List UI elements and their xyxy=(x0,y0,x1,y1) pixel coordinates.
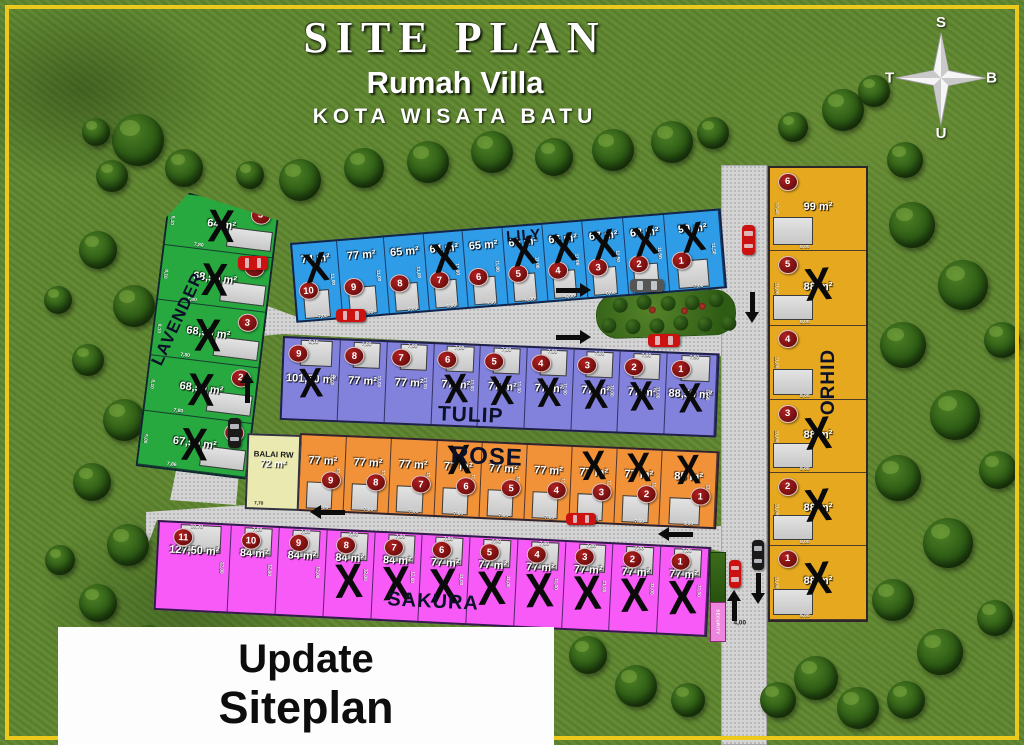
car-window xyxy=(355,311,360,320)
tree-icon xyxy=(73,463,111,501)
lot-tulip-7: 777 m²7,0011,00 xyxy=(385,342,435,424)
security-post-label: SECURITY xyxy=(716,609,721,634)
tree-icon xyxy=(471,131,513,173)
lot-tulip-2: 277 m²7,0011,00X xyxy=(618,352,668,434)
tree-icon xyxy=(837,687,879,729)
dimension-label: 11,00 xyxy=(494,260,500,272)
car-icon xyxy=(336,309,366,322)
dimension-label: 7,00 xyxy=(693,283,703,289)
compass-star-icon xyxy=(894,31,988,125)
car-window xyxy=(651,281,656,290)
lot-area-label: 127,50 m² xyxy=(158,543,230,558)
lot-area-label: 77 m² xyxy=(391,458,436,472)
tree-icon xyxy=(96,160,128,192)
sold-x-marker: X xyxy=(167,207,276,248)
lot-sakura-11: 11127,50 m²10,7012,00 xyxy=(156,522,233,611)
sold-x-marker: X xyxy=(769,262,868,307)
sold-x-marker: X xyxy=(665,381,715,416)
direction-arrow-icon xyxy=(556,330,591,344)
page-title: SITE PLAN xyxy=(230,12,680,63)
lot-tulip-1: 188,50 m²7,5011,00X xyxy=(664,353,717,435)
lot-number-badge: 7 xyxy=(410,475,431,494)
car-window xyxy=(744,244,753,249)
sold-x-marker: X xyxy=(661,453,716,488)
lot-rose-2: 277 m²7,0011,00X xyxy=(615,449,663,525)
sold-x-marker: X xyxy=(515,570,563,610)
block-label-tulip: TULIP xyxy=(437,402,504,429)
tree-icon xyxy=(165,149,203,187)
compass-bottom-label: U xyxy=(936,125,947,142)
dimension-label: 7,00 xyxy=(364,507,374,513)
lot-sakura-4: 477 m²7,0011,00X xyxy=(514,540,566,628)
lot-lily-1: 190 m²7,0011,50X xyxy=(664,211,725,291)
shrub-icon xyxy=(660,296,676,312)
tree-icon xyxy=(977,600,1013,636)
car-window xyxy=(257,258,262,268)
tree-icon xyxy=(592,129,634,171)
block-orhid: 699 m²8,0012,40588 m²8,0011,00X48,0011,0… xyxy=(768,166,868,622)
tree-icon xyxy=(760,682,796,718)
tree-icon xyxy=(930,390,980,440)
shrub-icon xyxy=(673,315,689,331)
arrow-head xyxy=(658,527,669,541)
arrow-shaft xyxy=(245,383,250,403)
car-window xyxy=(230,437,239,442)
dimension-label: 7,00 xyxy=(454,511,464,517)
dimension-label: 10,70 xyxy=(191,523,204,529)
arrow-shaft xyxy=(732,601,737,621)
sold-x-marker: X xyxy=(658,577,706,617)
lot-area-label: 65 m² xyxy=(385,244,425,259)
arrow-head xyxy=(240,372,254,383)
car-icon xyxy=(648,334,680,347)
title-block: SITE PLAN Rumah Villa KOTA WISATA BATU xyxy=(230,12,680,129)
dimension-label: 7,50 xyxy=(689,354,699,360)
sold-x-marker: X xyxy=(622,222,668,261)
direction-arrow-icon xyxy=(751,573,765,604)
dimension-label: 7,00 xyxy=(594,350,604,356)
lot-number-badge: 4 xyxy=(778,330,798,348)
dimension-label: 8,00 xyxy=(800,393,810,399)
lot-tulip-3: 377 m²7,0011,00X xyxy=(571,350,621,432)
car-window xyxy=(230,424,239,429)
tree-icon xyxy=(794,656,838,700)
sold-x-marker: X xyxy=(571,449,617,484)
tree-icon xyxy=(875,455,921,501)
lot-orhid-1: 188 m²9,0011,00X xyxy=(770,546,866,620)
tree-icon xyxy=(615,665,657,707)
car-icon xyxy=(228,418,241,448)
arrow-shaft xyxy=(321,510,345,515)
lot-tulip-9: 9101,50 m²8,1011,00X xyxy=(282,338,342,420)
lot-orhid-6: 699 m²8,0012,40 xyxy=(770,168,866,251)
lot-sakura-1: 177 m²7,0011,00X xyxy=(657,547,709,635)
sold-x-marker: X xyxy=(582,225,627,264)
sold-x-marker: X xyxy=(769,557,868,602)
dimension-label: 6,00 xyxy=(447,303,457,309)
tree-icon xyxy=(112,114,164,166)
dimension-label: 11,00 xyxy=(774,357,779,369)
tree-icon xyxy=(279,159,321,201)
block-label-sakura: SAKURA xyxy=(387,588,480,615)
lot-number-badge: 5 xyxy=(501,479,522,498)
dimension-label: 7,00 xyxy=(634,518,644,524)
compass-left-label: T xyxy=(885,70,894,87)
tree-icon xyxy=(113,285,155,327)
tree-icon xyxy=(979,451,1017,489)
tree-icon xyxy=(889,202,935,248)
dimension-label: 11,00 xyxy=(416,267,422,279)
house-footprint xyxy=(773,369,813,395)
tree-icon xyxy=(44,286,72,314)
dimension-label: 7,00 xyxy=(361,341,371,347)
lot-area-label: 99 m² xyxy=(770,201,866,213)
tree-icon xyxy=(344,148,384,188)
lot-rose-3: 377 m²7,0011,00X xyxy=(569,447,617,523)
lot-number-badge: 6 xyxy=(778,173,798,191)
compass-rose: S U T B xyxy=(885,14,997,142)
arrow-head xyxy=(751,593,765,604)
lot-lily-10: 1074 m²7,0011,00X xyxy=(292,241,343,320)
dimension-label: 8,00 xyxy=(800,318,810,324)
arrow-head xyxy=(727,590,741,601)
arrow-head xyxy=(745,312,759,323)
lot-rose-9: 977 m²7,0011,00 xyxy=(299,435,347,511)
dimension-label: 7,70 xyxy=(254,500,264,506)
arrow-head xyxy=(580,283,591,297)
lot-area-label: 65 m² xyxy=(463,238,503,253)
flower-icon xyxy=(681,307,688,314)
tree-icon xyxy=(236,161,264,189)
dimension-label: 8,00 xyxy=(800,244,810,250)
security-post: SECURITY xyxy=(710,602,726,642)
sold-x-marker: X xyxy=(611,575,659,615)
dimension-label: 8,00 xyxy=(800,466,810,472)
lot-orhid-5: 588 m²8,0011,00X xyxy=(770,251,866,325)
lot-tulip-4: 477 m²7,0011,00X xyxy=(525,348,575,430)
compass-right-label: B xyxy=(986,70,997,87)
direction-arrow-icon xyxy=(240,372,254,403)
tree-icon xyxy=(984,322,1020,358)
sold-x-marker: X xyxy=(292,248,341,288)
block-tulip: 9101,50 m²8,1011,00X877 m²7,0011,00777 m… xyxy=(280,336,720,437)
tree-icon xyxy=(917,629,963,675)
tree-icon xyxy=(72,344,104,376)
dimension-label: 7,00 xyxy=(641,352,651,358)
tree-icon xyxy=(923,518,973,568)
lot-sakura-9: 984 m²7,0012,00 xyxy=(276,528,328,616)
dimension-label: 8,10 xyxy=(309,339,319,345)
lot-area-label: 77 m² xyxy=(301,454,346,468)
tree-icon xyxy=(79,584,117,622)
community-hall-block: BALAI RW 72 m² 7,70 xyxy=(245,433,302,511)
direction-arrow-icon xyxy=(658,527,693,541)
sold-x-marker: X xyxy=(769,484,868,529)
sold-x-marker: X xyxy=(618,380,665,415)
lot-area-label: 77 m² xyxy=(346,456,391,470)
sold-x-marker: X xyxy=(282,366,339,402)
dimension-label: 6,00 xyxy=(407,306,417,312)
shrub-icon xyxy=(649,318,665,334)
community-hall-area: 72 m² xyxy=(248,458,298,471)
block-label-rose: ROSE xyxy=(450,442,523,473)
dimension-label: 7,00 xyxy=(501,346,511,352)
arrow-shaft xyxy=(750,292,755,312)
shrub-icon xyxy=(612,297,628,313)
car-window xyxy=(731,577,739,581)
dimension-label: 11,00 xyxy=(422,377,428,389)
car-window xyxy=(585,515,590,523)
update-overlay-line2: Siteplan xyxy=(58,682,554,734)
direction-arrow-icon xyxy=(727,590,741,621)
block-label-orhid: ORHID xyxy=(818,349,840,415)
dimension-label: 6,00 xyxy=(526,296,536,302)
sold-x-marker: X xyxy=(324,561,372,601)
tree-icon xyxy=(938,260,988,310)
car-window xyxy=(754,559,762,564)
lot-sakura-2: 277 m²7,0011,00X xyxy=(610,544,662,632)
shrub-icon xyxy=(708,292,724,308)
sold-x-marker: X xyxy=(563,572,611,612)
lot-sakura-8: 884 m²7,0012,00X xyxy=(323,530,375,618)
lot-rose-4: 477 m²7,0011,00 xyxy=(524,445,572,521)
compass-top-label: S xyxy=(936,14,946,31)
direction-arrow-icon xyxy=(310,505,345,519)
arrow-shaft xyxy=(756,573,761,593)
dimension-label: 11,00 xyxy=(376,376,382,388)
tree-icon xyxy=(880,322,926,368)
lot-rose-8: 877 m²7,0011,00 xyxy=(344,437,392,513)
dimension-label: 7,00 xyxy=(499,512,509,518)
lot-area-label: 77 m² xyxy=(338,247,385,263)
car-icon xyxy=(630,279,664,292)
lot-tulip-8: 877 m²7,0011,00 xyxy=(338,340,388,422)
direction-arrow-icon xyxy=(745,292,759,323)
lot-lily-7: 764 m²6,0011,00X xyxy=(424,231,469,310)
tree-icon xyxy=(82,118,110,146)
tree-icon xyxy=(671,683,705,717)
update-overlay: Update Siteplan xyxy=(58,627,554,745)
tree-icon xyxy=(407,141,449,183)
dimension-label: 11,00 xyxy=(376,270,382,282)
car-icon xyxy=(752,540,764,570)
shrub-icon xyxy=(625,319,641,335)
car-window xyxy=(343,311,348,320)
car-window xyxy=(731,566,739,570)
car-window xyxy=(655,336,660,345)
block-label-lily: LILY xyxy=(506,226,542,246)
dimension-label: 7,00 xyxy=(408,343,418,349)
arrow-head xyxy=(580,330,591,344)
flower-icon xyxy=(699,303,706,310)
dimension-label: 12,00 xyxy=(267,564,273,576)
tree-icon xyxy=(887,142,923,178)
sold-x-marker: X xyxy=(525,376,572,411)
tree-icon xyxy=(79,231,117,269)
dimension-label: 8,00 xyxy=(800,538,810,544)
car-icon xyxy=(566,513,596,525)
arrow-head xyxy=(310,505,321,519)
lot-orhid-2: 288 m²8,0011,00X xyxy=(770,473,866,545)
dimension-label: 9,00 xyxy=(800,613,810,619)
car-icon xyxy=(729,560,741,588)
shrub-icon xyxy=(601,318,617,334)
dimension-label: 6,00 xyxy=(606,290,616,296)
lot-area-label: 77 m² xyxy=(526,463,571,477)
shrub-icon xyxy=(697,316,713,332)
car-icon xyxy=(742,225,755,255)
site-plan-poster: 1074 m²7,0011,00X977 m²7,0011,00865 m²6,… xyxy=(0,0,1024,745)
sold-x-marker: X xyxy=(769,411,868,456)
page-subtitle: Rumah Villa xyxy=(230,65,680,101)
dimension-label: 12,00 xyxy=(315,566,321,578)
tree-icon xyxy=(778,112,808,142)
lot-rose-7: 777 m²7,0011,00 xyxy=(389,439,437,515)
arrow-shaft xyxy=(669,532,693,537)
sold-x-marker: X xyxy=(541,228,585,267)
car-window xyxy=(245,258,250,268)
dimension-label: 12,40 xyxy=(774,203,779,215)
car-window xyxy=(637,281,642,290)
dimension-label: 7,00 xyxy=(544,514,554,520)
tree-icon xyxy=(107,524,149,566)
car-window xyxy=(668,336,673,345)
car-icon xyxy=(238,256,268,270)
sold-x-marker: X xyxy=(572,378,619,413)
tree-icon xyxy=(103,399,145,441)
update-overlay-line1: Update xyxy=(58,637,554,682)
sold-x-marker: X xyxy=(616,451,662,486)
tree-icon xyxy=(569,636,607,674)
arrow-shaft xyxy=(556,335,580,340)
direction-arrow-icon xyxy=(556,283,591,297)
tree-icon xyxy=(697,117,729,149)
lot-sakura-3: 377 m²7,0011,00X xyxy=(562,542,614,630)
car-window xyxy=(744,231,753,236)
tree-icon xyxy=(887,681,925,719)
house-footprint xyxy=(773,217,813,245)
arrow-shaft xyxy=(556,288,580,293)
flower-icon xyxy=(649,306,656,313)
tree-icon xyxy=(872,579,914,621)
tree-icon xyxy=(45,545,75,575)
car-window xyxy=(573,515,578,523)
car-window xyxy=(754,546,762,551)
lot-sakura-10: 1084 m²7,0012,00 xyxy=(228,526,280,614)
dimension-label: 7,00 xyxy=(409,509,419,515)
dimension-label: 12,00 xyxy=(219,561,225,573)
sold-x-marker: X xyxy=(423,238,466,277)
gate-planter-strip xyxy=(710,552,726,604)
page-location: KOTA WISATA BATU xyxy=(230,105,680,129)
dimension-label: 8,00 xyxy=(683,521,693,527)
dimension-label: 7,00 xyxy=(455,345,465,351)
lot-rose-1: 185 m²8,0011,00X xyxy=(660,451,718,527)
tree-icon xyxy=(535,138,573,176)
dimension-label: 7,00 xyxy=(317,313,327,319)
lot-lily-9: 977 m²7,0011,00 xyxy=(337,237,390,317)
dimension-label: 6,00 xyxy=(486,299,496,305)
dimension-label: 7,00 xyxy=(548,348,558,354)
